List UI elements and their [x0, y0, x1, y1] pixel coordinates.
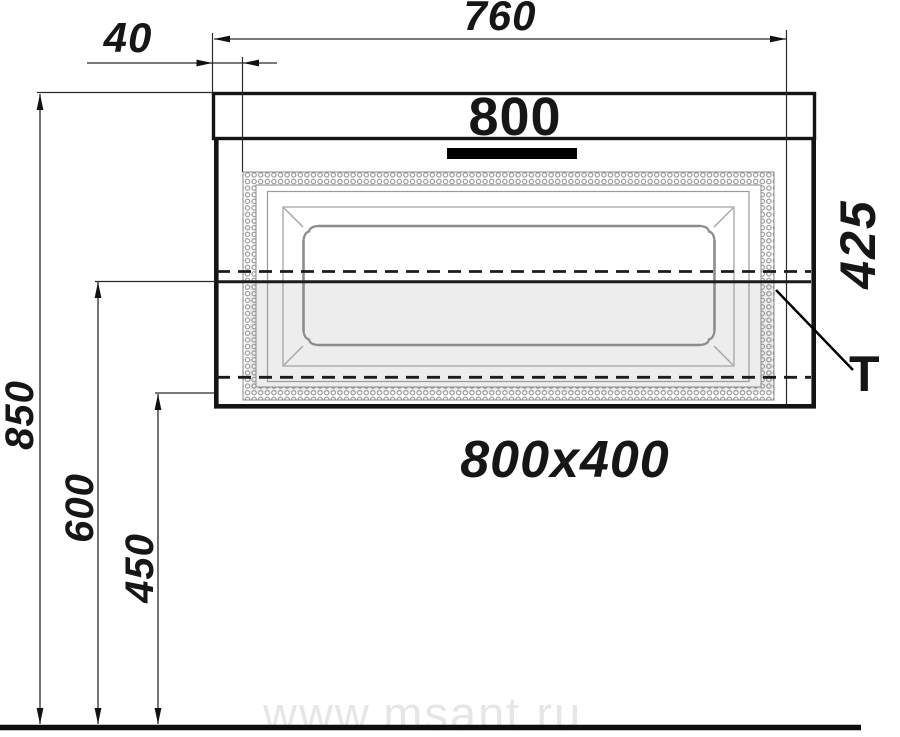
dimension-top-width: 760	[440, 0, 560, 40]
product-width-label: 800	[455, 86, 575, 148]
dimension-cabinet-height: 425	[836, 164, 880, 324]
product-width-underline	[447, 148, 577, 159]
technical-drawing-page: www.msant.ru	[0, 0, 900, 737]
dimension-mid-height: 600	[58, 428, 102, 588]
dimension-lower-height: 450	[118, 488, 162, 648]
dimension-mounting-height: 850	[0, 335, 42, 495]
shaded-basin-area	[250, 283, 774, 392]
dimension-side-offset: 40	[88, 14, 168, 62]
product-size-label: 800x400	[425, 430, 705, 490]
t-marker-label: T	[849, 345, 880, 403]
